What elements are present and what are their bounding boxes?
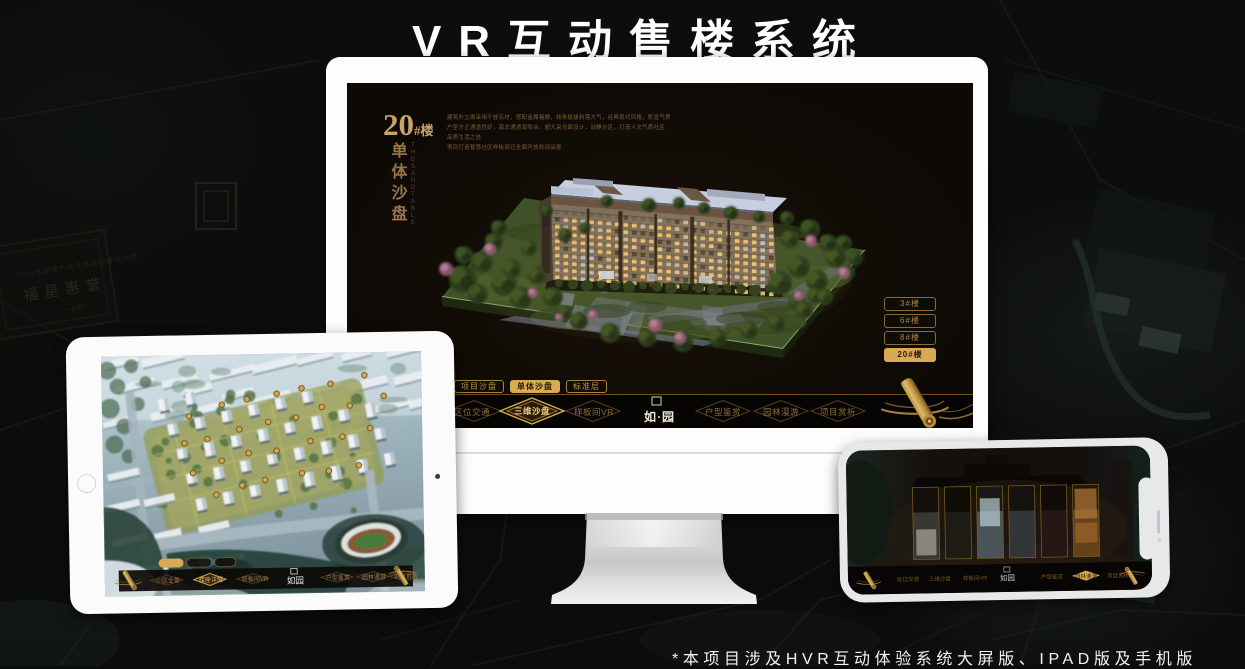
svg-text:户型方正通透性好，南北通透双阳台，超大采光面设计，动静分区，: 户型方正通透性好，南北通透双阳台，超大采光面设计，动静分区，打造人文气质社区 [447, 123, 665, 131]
svg-text:如园: 如园 [1000, 572, 1015, 582]
svg-text:建筑外立面采用干挂石材，搭配金属格栅，线条挺拔利落大气，经典: 建筑外立面采用干挂石材，搭配金属格栅，线条挺拔利落大气，经典现代风格，彰显气质 [447, 113, 671, 121]
svg-text:项目打造智慧社区样板间已全面开放欢迎品鉴: 项目打造智慧社区样板间已全面开放欢迎品鉴 [447, 143, 562, 151]
svg-text:如园: 如园 [287, 575, 304, 585]
svg-text:品质生活之处: 品质生活之处 [447, 133, 482, 141]
